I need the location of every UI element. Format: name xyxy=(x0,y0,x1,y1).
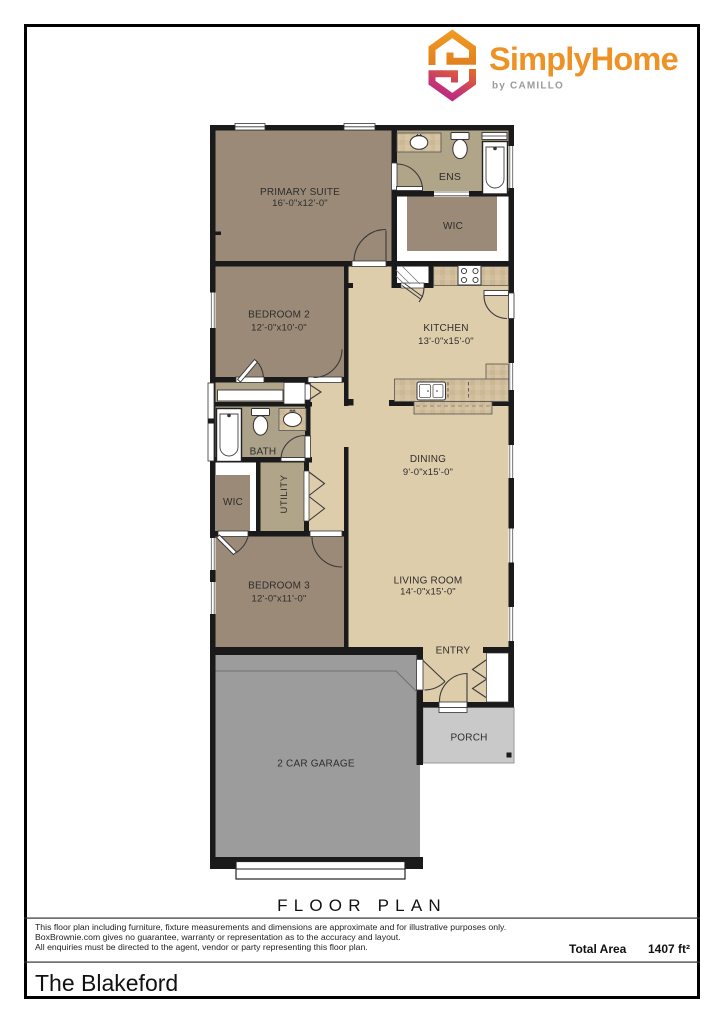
svg-text:DINING: DINING xyxy=(410,454,446,465)
svg-text:LIVING ROOM: LIVING ROOM xyxy=(394,576,463,587)
svg-text:KITCHEN: KITCHEN xyxy=(423,323,468,334)
svg-text:BEDROOM 2: BEDROOM 2 xyxy=(248,310,310,321)
svg-text:12'-0"x11'-0": 12'-0"x11'-0" xyxy=(251,594,306,605)
svg-text:All enquiries must be directed: All enquiries must be directed to the ag… xyxy=(35,942,368,952)
svg-text:ENS: ENS xyxy=(439,171,461,183)
svg-text:UTILITY: UTILITY xyxy=(279,474,290,513)
svg-text:WIC: WIC xyxy=(443,221,463,232)
svg-text:2 CAR GARAGE: 2 CAR GARAGE xyxy=(277,759,355,770)
svg-text:16'-0"x12'-0": 16'-0"x12'-0" xyxy=(272,198,328,209)
svg-text:BATH: BATH xyxy=(250,447,277,458)
svg-text:FLOOR PLAN: FLOOR PLAN xyxy=(277,896,447,915)
svg-text:9'-0"x15'-0": 9'-0"x15'-0" xyxy=(403,467,453,478)
svg-text:ENTRY: ENTRY xyxy=(436,646,471,657)
svg-text:Total Area: Total Area xyxy=(569,942,627,956)
svg-text:SimplyHome: SimplyHome xyxy=(489,41,678,77)
svg-text:14'-0"x15'-0": 14'-0"x15'-0" xyxy=(400,587,456,598)
svg-text:This floor plan including furn: This floor plan including furniture, fix… xyxy=(35,922,506,932)
svg-text:13'-0"x15'-0": 13'-0"x15'-0" xyxy=(418,336,474,347)
svg-text:WIC: WIC xyxy=(223,497,243,508)
svg-text:12'-0"x10'-0": 12'-0"x10'-0" xyxy=(251,323,307,334)
svg-text:The Blakeford: The Blakeford xyxy=(35,970,178,996)
svg-text:PRIMARY SUITE: PRIMARY SUITE xyxy=(260,187,340,198)
svg-text:by CAMILLO: by CAMILLO xyxy=(492,81,564,92)
svg-text:BoxBrownie.com gives no guaran: BoxBrownie.com gives no guarantee, warra… xyxy=(35,932,401,942)
svg-text:BEDROOM 3: BEDROOM 3 xyxy=(248,581,310,592)
svg-text:1407 ft²: 1407 ft² xyxy=(648,942,690,956)
svg-text:PORCH: PORCH xyxy=(450,733,487,744)
